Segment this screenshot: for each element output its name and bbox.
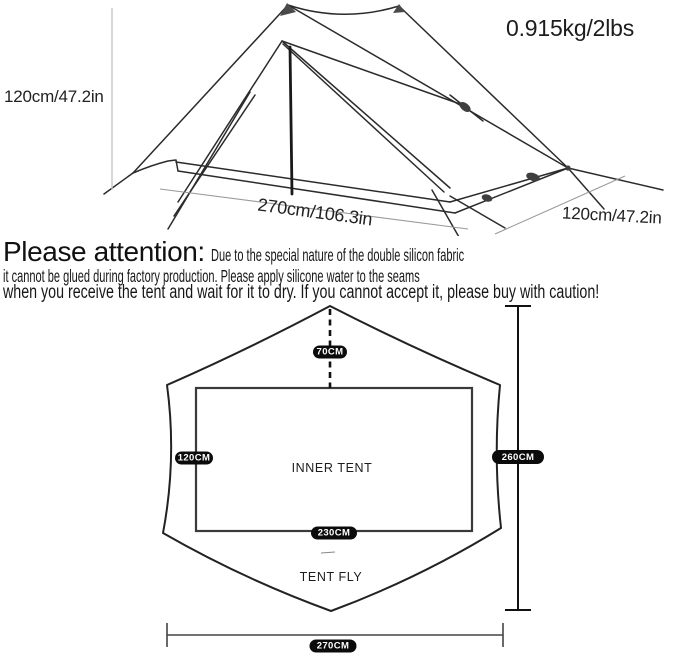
door-right-edge [282,41,450,188]
dim-pill-120cm: 120CM [175,452,213,465]
dim-pill-270cm: 270CM [310,640,357,653]
front-apex-marker [280,3,296,16]
attention-heading: Please attention: [3,236,205,268]
guy-line [104,173,133,194]
inner-tent-outline [196,388,472,531]
rear-apex-marker [393,4,405,13]
guy-line [432,190,467,236]
weight-label: 0.915kg/2lbs [506,15,634,42]
ridge-line [288,5,399,14]
attention-note-line1: Please attention: Due to the special nat… [3,236,613,268]
inner-tent-label: INNER TENT [292,461,373,475]
dim-pill-260cm: 260CM [492,450,544,464]
floor-right-edge-top [450,168,568,202]
dim-pill-230cm: 230CM [311,527,357,540]
guy-line [168,92,250,229]
floor-right-edge-bottom [455,168,568,213]
guy-line [568,168,604,209]
stake-point [565,165,570,170]
dim-pill-70cm: 70CM [313,346,347,359]
attention-line1-text: Due to the special nature of the double … [211,245,464,266]
zipper-tick [321,552,335,553]
door-left-edge [178,41,282,202]
inner-ridge-line [282,41,460,104]
guy-line [568,168,663,190]
trekking-pole [290,47,292,194]
tent-height-label: 120cm/47.2in [4,87,104,107]
product-diagram-page: 0.915kg/2lbs 120cm/47.2in 270cm/106.3in … [0,0,679,662]
left-slope-line [133,5,288,173]
tent-fly-label: TENT FLY [300,570,363,584]
door-right-edge-inner [283,44,444,192]
